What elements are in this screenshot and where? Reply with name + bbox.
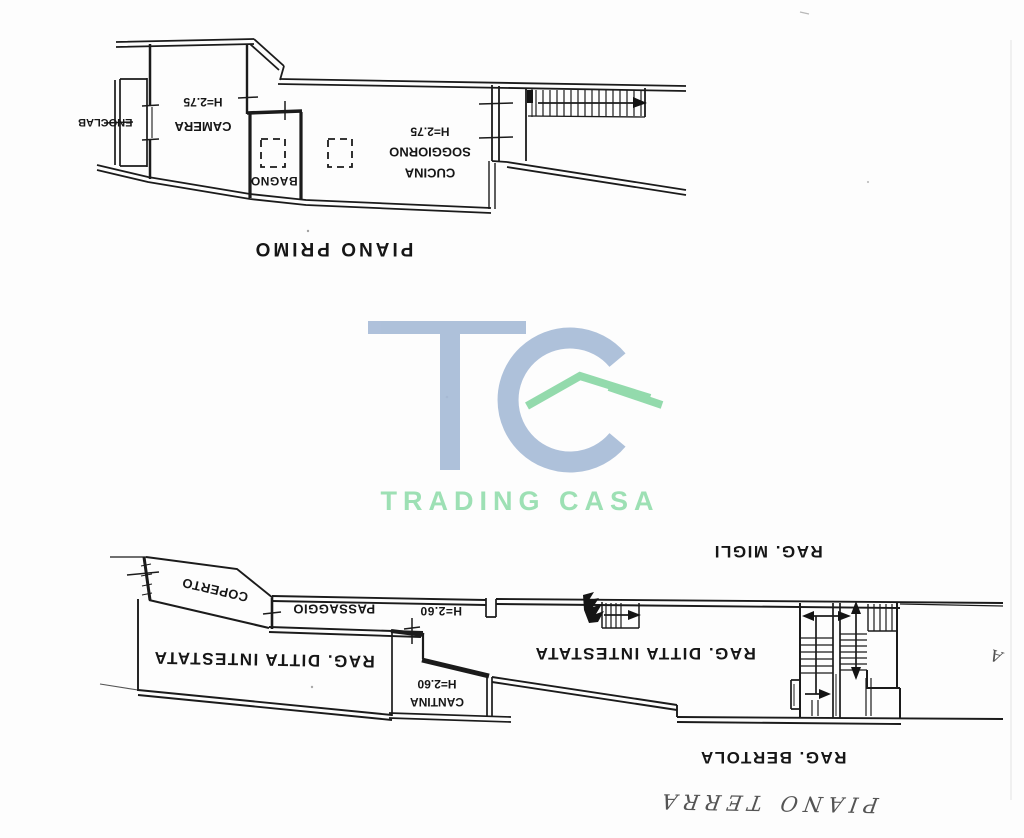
left-unit-label: RAG. DITTA INTESTATA [153,647,375,671]
cellar-label: CANTINA [410,693,464,711]
cellar-height-label: H=2.60 [410,675,464,693]
kitchen-skylight [328,139,352,167]
kitchen-label-line1: CUCINA [389,163,471,184]
bathroom-label: BAGNO [250,174,297,188]
kitchen-height-label: H=2.75 [389,121,471,142]
bathroom-skylight [261,139,285,167]
bedroom-height-label: H=2.75 [174,90,231,114]
cellar-label-block: CANTINA H=2.60 [410,675,464,711]
tc-monogram-icon [330,300,710,490]
ground-floor-plan [100,557,1003,724]
neighbor-lower-label: RAG. BERTOLA [699,747,846,767]
watermark-name: TRADING CASA [330,486,710,517]
bedroom-label-block: CAMERA H=2.75 [174,90,231,138]
bedroom-label: CAMERA [174,114,231,138]
ground-floor-small-staircase [583,592,641,628]
balcony-label: ENOCLAB [120,117,133,127]
kitchen-label-block: CUCINA SOGGIORNO H=2.75 [389,121,471,184]
floor-plan-document: ENOCLAB CAMERA H=2.75 BAGNO CUCINA SOGGI… [0,0,1024,838]
passage-label: PASSAGGIO [293,602,375,617]
neighbor-upper-label: RAG. MIGLI [713,541,822,561]
first-floor-staircase [526,88,647,161]
trading-casa-watermark: TRADING CASA [330,300,710,540]
kitchen-label-line2: SOGGIORNO [389,142,471,163]
ground-floor-stair-complex [791,601,900,718]
first-floor-title: PIANO PRIMO [253,237,414,259]
right-unit-label: RAG. DITTA INTESTATA [534,643,756,663]
passage-height-label: H=2.60 [420,604,462,618]
ground-floor-title: PIANO TERRA [654,789,880,817]
